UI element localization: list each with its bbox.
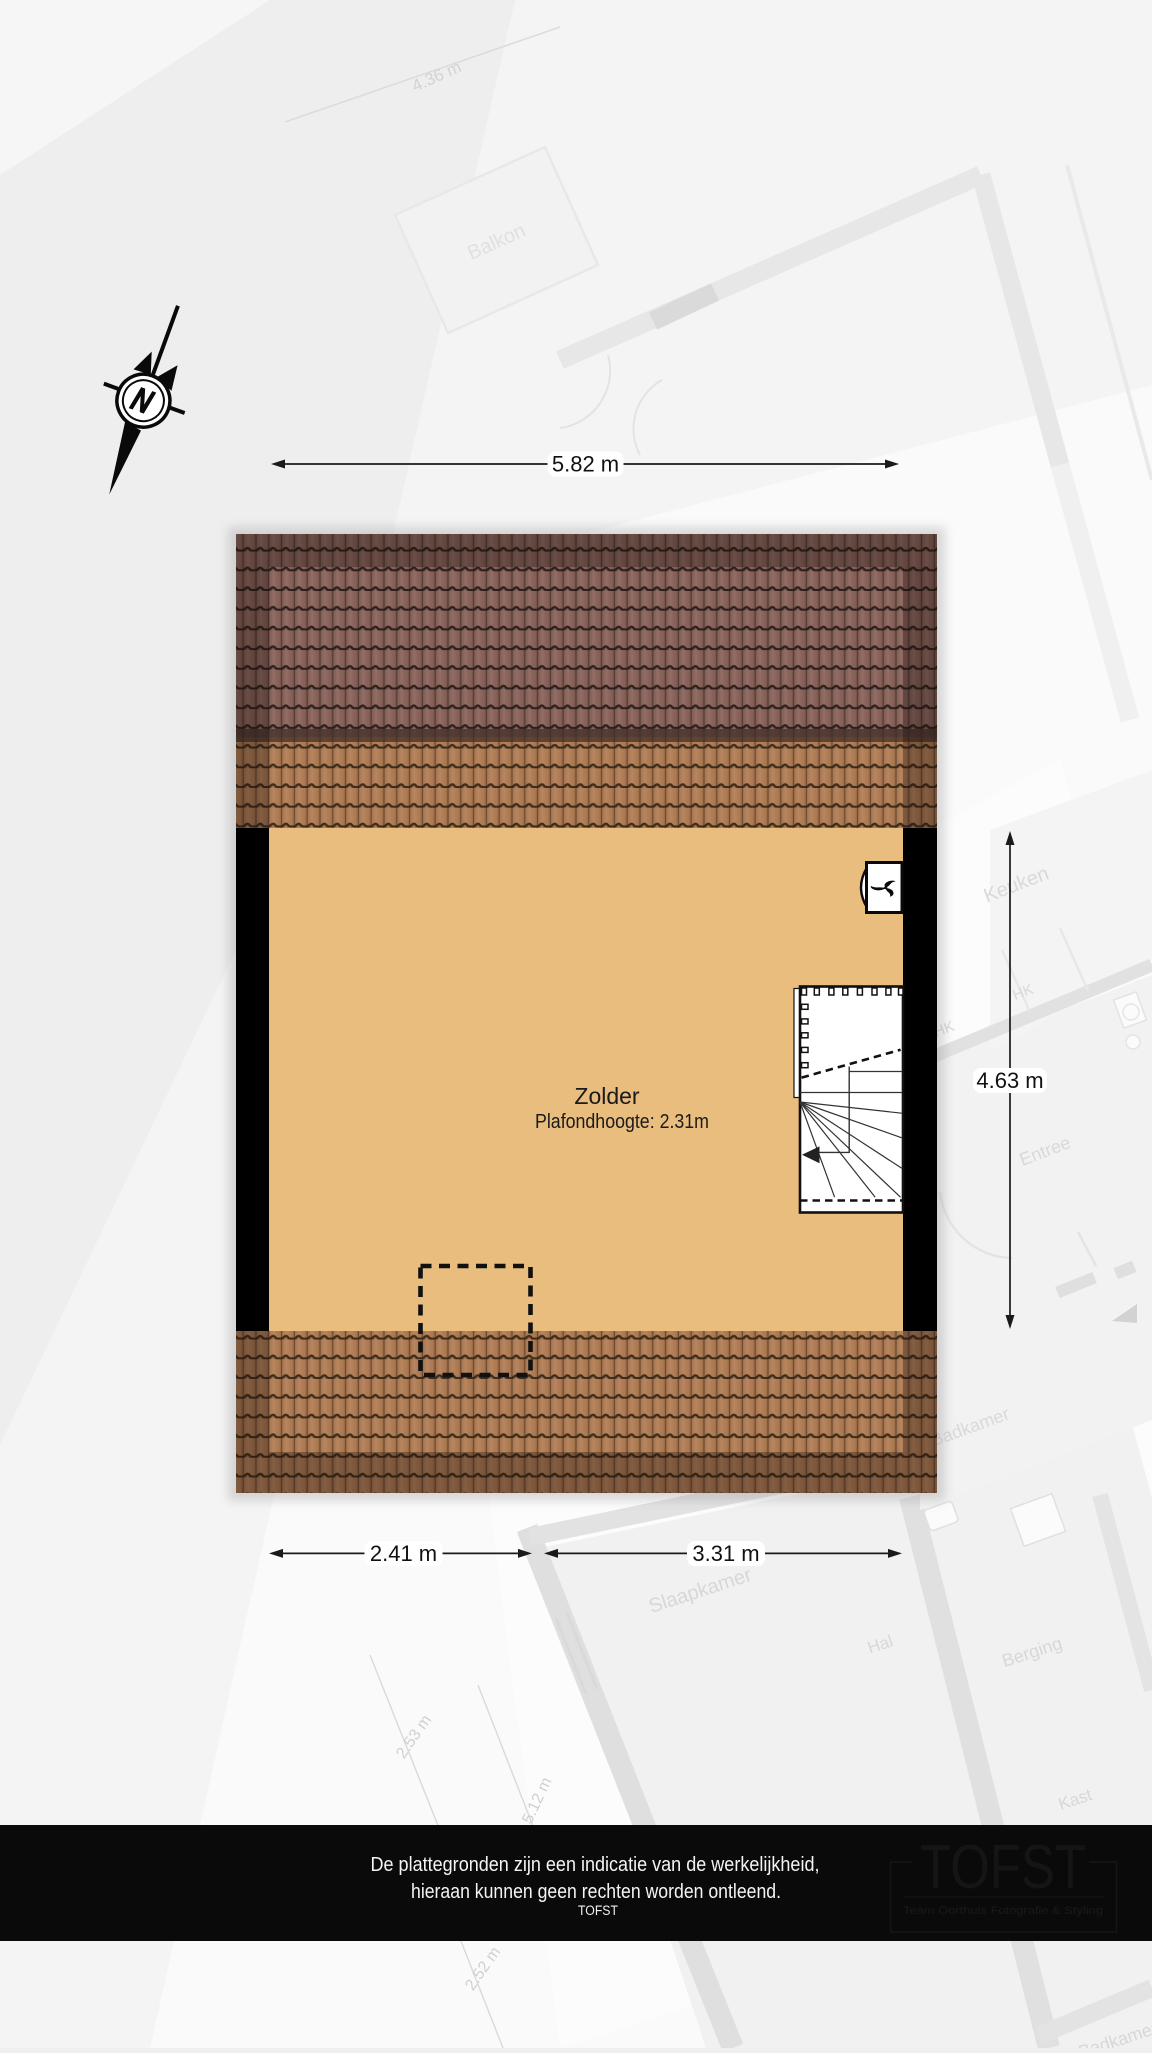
svg-text:5.82 m: 5.82 m [552,452,619,477]
svg-text:3.31 m: 3.31 m [692,1541,759,1566]
svg-text:TOFST: TOFST [578,1903,618,1918]
svg-text:2.41 m: 2.41 m [370,1541,437,1566]
svg-text:De plattegronden zijn een indi: De plattegronden zijn een indicatie van … [371,1853,820,1876]
svg-text:4.63 m: 4.63 m [976,1068,1043,1093]
svg-text:TOFST: TOFST [920,1833,1086,1902]
svg-text:Team Oorthuis Fotografie & Sty: Team Oorthuis Fotografie & Styling [903,1905,1103,1917]
svg-text:Plafondhoogte: 2.31m: Plafondhoogte: 2.31m [535,1110,709,1133]
svg-text:Zolder: Zolder [574,1083,640,1109]
svg-text:hieraan kunnen geen rechten wo: hieraan kunnen geen rechten worden ontle… [411,1880,781,1903]
